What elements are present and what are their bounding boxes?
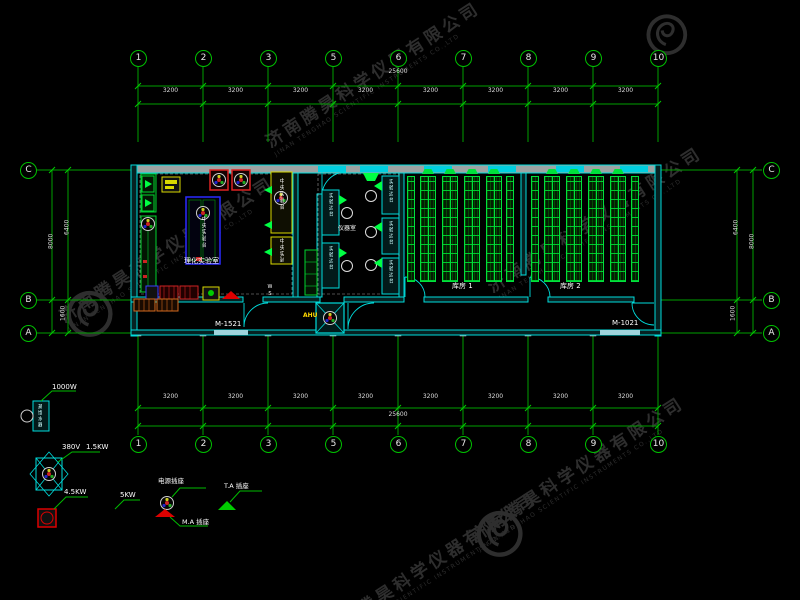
grid-bubble-top: 5	[325, 50, 342, 67]
grid-bubble-top: 7	[455, 50, 472, 67]
bench-label-side: 实验边台	[328, 246, 333, 286]
legend-power-socket: 电源插座	[158, 478, 184, 485]
grid-bubble-right: B	[763, 292, 780, 309]
stool	[366, 260, 377, 271]
grid-bubble-right: A	[763, 325, 780, 342]
legend-380v: 380V	[62, 444, 80, 452]
sign-board	[162, 177, 180, 192]
storage-rack	[464, 176, 480, 282]
ahu-label: AHU	[303, 313, 318, 320]
bay-dim-top: 3200	[484, 88, 508, 95]
radiator	[157, 299, 178, 311]
storage-rack	[631, 176, 639, 282]
stool	[366, 191, 377, 202]
grid-bubble-top: 8	[520, 50, 537, 67]
storage-rack	[544, 176, 560, 282]
storage-rack	[610, 176, 626, 282]
vestibule	[316, 303, 344, 333]
bay-dim-top: 3200	[289, 88, 313, 95]
bench-label-side: 实验边台	[388, 260, 393, 290]
bay-dim-top: 3200	[614, 88, 638, 95]
bay-dim-bottom: 3200	[224, 394, 248, 401]
grid-bubble-top: 9	[585, 50, 602, 67]
bay-dim-top: 3200	[224, 88, 248, 95]
grid-bubble-bottom: 5	[325, 436, 342, 453]
stool	[342, 261, 353, 272]
bay-dim-bottom: 3200	[289, 394, 313, 401]
bench-label-central: 中央实验台	[278, 178, 284, 228]
grid-bubble-bottom: 9	[585, 436, 602, 453]
grid-bubble-bottom: 7	[455, 436, 472, 453]
door-frame	[214, 330, 248, 335]
cad-floor-plan: 济南腾昊科学仪器有限公司 JINAN TENGHAO SCIENTIFIC IN…	[0, 0, 800, 600]
grid-bubble-bottom: 8	[520, 436, 537, 453]
bay-dim-top: 3200	[354, 88, 378, 95]
plan-geometry	[0, 0, 800, 600]
bay-dim-top: 3200	[549, 88, 573, 95]
legend-1-5kw: 1.5KW	[86, 444, 108, 452]
ma-socket-symbol	[155, 509, 175, 517]
legend-ma-socket: M.A 插座	[182, 519, 209, 526]
dim-lower-left: 1600	[61, 301, 68, 325]
window	[318, 166, 346, 172]
dim-upper-right: 6400	[734, 215, 741, 239]
bay-dim-bottom: 3200	[419, 394, 443, 401]
legend-1000w: 1000W	[52, 384, 77, 392]
grid-bubble-bottom: 2	[195, 436, 212, 453]
total-dim-bottom: 25600	[386, 412, 410, 419]
storage-rack	[506, 176, 514, 282]
grid-bubble-top: 3	[260, 50, 277, 67]
grid-bubble-bottom: 3	[260, 436, 277, 453]
dim-overall-left: 8000	[49, 229, 56, 253]
room-label-store1: 库房 1	[452, 283, 473, 291]
bench-label-side: 实验边台	[328, 193, 333, 233]
radiator	[134, 299, 155, 311]
bay-dim-bottom: 3200	[354, 394, 378, 401]
grid-bubble-bottom: 6	[390, 436, 407, 453]
bay-dim-bottom: 3200	[484, 394, 508, 401]
dim-overall-right: 8000	[750, 229, 757, 253]
grid-bubble-left: B	[20, 292, 37, 309]
dim-lower-right: 1600	[731, 301, 738, 325]
total-dim-top: 25600	[386, 69, 410, 76]
ws-label: WS	[267, 284, 272, 298]
room-label-instrument: 仪器室	[338, 226, 356, 233]
storage-rack	[420, 176, 436, 282]
bay-dim-bottom: 3200	[614, 394, 638, 401]
bay-dim-bottom: 3200	[549, 394, 573, 401]
grid-bubble-bottom: 10	[650, 436, 667, 453]
window	[620, 166, 648, 172]
bench-label-side: 实验边台	[388, 221, 393, 251]
grid-bubble-left: A	[20, 325, 37, 342]
grid-bubble-right: C	[763, 162, 780, 179]
stool	[366, 227, 377, 238]
legend-5kw: 5KW	[120, 492, 136, 500]
dim-upper-left: 6400	[65, 215, 72, 239]
ta-socket-symbol	[218, 501, 236, 510]
window	[360, 166, 388, 172]
bay-dim-top: 3200	[159, 88, 183, 95]
bay-dim-top: 3200	[419, 88, 443, 95]
legend-4-5kw: 4.5KW	[64, 489, 86, 497]
grid-bubble-top: 1	[130, 50, 147, 67]
door-label-m1521: M-1521	[215, 321, 241, 329]
ceiling-lamp-icon	[363, 173, 379, 181]
storage-rack	[442, 176, 458, 282]
legend	[21, 391, 262, 527]
bench-label-side: 实验边台	[388, 179, 393, 211]
storage-rack	[407, 176, 415, 282]
grid-bubble-bottom: 1	[130, 436, 147, 453]
legend-ta-socket: T.A 插座	[224, 483, 249, 490]
storage-rack	[588, 176, 604, 282]
room-label-store2: 库房 2	[560, 283, 581, 291]
floor-symbol	[222, 291, 240, 299]
bench-label-central: 中央实验台	[200, 216, 206, 264]
grid-bubble-top: 2	[195, 50, 212, 67]
grid-bubble-top: 6	[390, 50, 407, 67]
bench-label-central: 中央实验台	[278, 238, 284, 262]
stool	[342, 208, 353, 219]
door-label-m1021: M-1021	[612, 320, 638, 328]
bay-dim-bottom: 3200	[159, 394, 183, 401]
water-device-label: 蒸馏水器	[37, 404, 42, 430]
grid-bubble-left: C	[20, 162, 37, 179]
storage-rack	[566, 176, 582, 282]
storage-rack	[486, 176, 502, 282]
grid-bubble-top: 10	[650, 50, 667, 67]
door-frame	[600, 330, 640, 335]
storage-rack	[531, 176, 539, 282]
